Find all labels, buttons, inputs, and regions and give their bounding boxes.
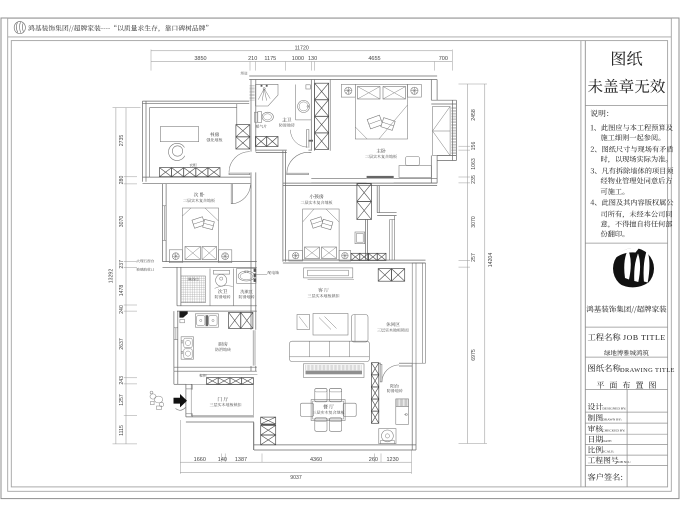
svg-text:1257: 1257 <box>119 394 125 406</box>
svg-text:DRAWN BY:: DRAWN BY: <box>602 418 621 422</box>
svg-text:243: 243 <box>119 376 125 385</box>
svg-text:156: 156 <box>471 142 477 151</box>
svg-text:1478: 1478 <box>119 285 125 297</box>
svg-text:1387: 1387 <box>235 457 247 463</box>
svg-text:DESIGNED BY:: DESIGNED BY: <box>602 407 626 411</box>
svg-text:9037: 9037 <box>290 475 302 481</box>
svg-text:14204: 14204 <box>488 253 494 268</box>
svg-text:700: 700 <box>439 56 448 62</box>
svg-text:235: 235 <box>471 175 477 184</box>
svg-text:DRAWING TITLE: DRAWING TITLE <box>620 367 675 374</box>
svg-text:4655: 4655 <box>368 56 380 62</box>
svg-text:3070: 3070 <box>119 216 125 228</box>
svg-text:140: 140 <box>218 457 227 463</box>
svg-text:240: 240 <box>119 305 125 314</box>
svg-text:4360: 4360 <box>310 457 322 463</box>
svg-text:280: 280 <box>119 176 125 185</box>
svg-text:1063: 1063 <box>471 158 477 170</box>
svg-text:1175: 1175 <box>264 56 276 62</box>
svg-text:260: 260 <box>369 457 378 463</box>
svg-text:3070: 3070 <box>471 216 477 228</box>
svg-text:2637: 2637 <box>119 338 125 350</box>
svg-text:1115: 1115 <box>119 425 125 436</box>
svg-text:SCALE:: SCALE: <box>602 450 614 454</box>
svg-text:257: 257 <box>471 253 477 262</box>
svg-text:2458: 2458 <box>471 109 477 121</box>
svg-text:1230: 1230 <box>386 457 398 463</box>
svg-text:1660: 1660 <box>194 457 206 463</box>
svg-text:13292: 13292 <box>109 269 115 284</box>
svg-text:CHECKED BY:: CHECKED BY: <box>602 429 625 433</box>
svg-text:3850: 3850 <box>194 56 206 62</box>
svg-text:6975: 6975 <box>471 349 477 361</box>
svg-text:130: 130 <box>308 56 317 62</box>
svg-text:210: 210 <box>248 56 257 62</box>
svg-text:JOB NO.:: JOB NO.: <box>617 460 631 464</box>
svg-text:JOB TITLE: JOB TITLE <box>623 333 666 342</box>
svg-text:1000: 1000 <box>292 56 304 62</box>
svg-text:11720: 11720 <box>295 45 309 51</box>
svg-text:237: 237 <box>119 260 125 269</box>
svg-text:2735: 2735 <box>119 135 125 147</box>
svg-text:DATE:: DATE: <box>602 439 612 443</box>
